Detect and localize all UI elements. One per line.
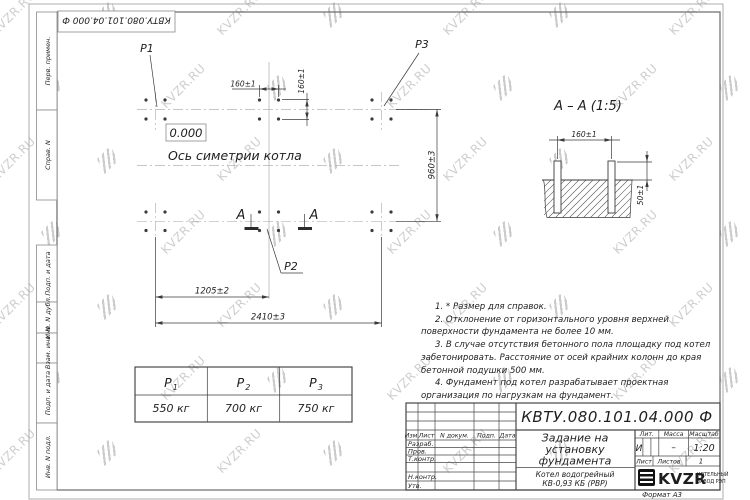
lit-mass-scale: Лит. Масса Масштаб И – 1:20	[635, 430, 720, 456]
col-list: Лист	[418, 433, 435, 440]
section-view: А – А (1:5) 160±1 50±1	[506, 99, 670, 218]
note-3: 3. В случае отсутствия бетонного пола пл…	[421, 339, 718, 377]
product-line2: КВ-0,93 КБ (РВР)	[542, 479, 607, 488]
concrete-pad	[506, 180, 670, 218]
title-block-designation: КВТУ.080.101.04.000 Ф	[521, 408, 712, 426]
concrete-hatching	[506, 180, 670, 218]
note-4: 4. Фундамент под котел разрабатывает про…	[421, 377, 718, 402]
load-table-value-p1: 550 кг	[153, 402, 190, 415]
scale-label: Масштаб	[689, 430, 719, 438]
note-2: 2. Отклонение от горизонтального уровня …	[421, 314, 718, 339]
load-table-value-p3: 750 кг	[298, 402, 335, 415]
product-name: Котел водогрейный КВ-0,93 КБ (РВР)	[536, 470, 615, 488]
dim-160-side-text: 160±1	[297, 68, 306, 93]
boiler-axis-label: Ось симетрии котла	[168, 148, 302, 163]
company-logo: KVZR КОТЕЛЬНЫЙ ЗАВОД РЭП	[638, 469, 729, 488]
margin-label-inv-podl: Инв. N подл.	[44, 435, 52, 478]
load-table-header-p2: P2	[237, 375, 251, 392]
sheets-value: 1	[699, 458, 703, 466]
elevation-mark-text: 0.000	[170, 126, 203, 140]
dimension-arrows	[156, 87, 649, 324]
mass-value: –	[671, 443, 676, 453]
section-cut-marks: А А	[236, 208, 319, 229]
doc-title-line3: фундамента	[539, 455, 612, 468]
sheet-label: Лист	[635, 459, 652, 466]
lit-value: И	[636, 444, 643, 454]
dim-1205-text: 1205±2	[195, 287, 229, 297]
load-table: P1 P2 P3 550 кг 700 кг 750 кг	[135, 367, 352, 422]
margin-label-vzam-inv: Взам. инв. N	[44, 327, 52, 369]
company-tagline-line2: ЗАВОД РЭП	[697, 479, 726, 485]
load-table-header-p1: P1	[164, 375, 178, 392]
section-dim-50-text: 50±1	[636, 185, 645, 206]
margin-label-podp-data-2: Подп. и дата	[44, 371, 52, 415]
mass-label: Масса	[664, 431, 684, 438]
section-view-title: А – А (1:5)	[553, 99, 622, 114]
title-block: Изм. Лист N докум. Подп. Дата Разраб. Пр…	[405, 403, 729, 499]
sheets-label: Листов	[656, 459, 680, 466]
top-designation-stamp: КВТУ.080.101.04.000 Ф	[58, 11, 175, 32]
dim-960-text: 960±3	[428, 151, 438, 180]
col-izm: Изм.	[405, 433, 420, 440]
load-point-p1-label: P1	[140, 42, 154, 55]
company-tagline-line1: КОТЕЛЬНЫЙ	[697, 471, 729, 478]
drawing-sheet: KVZR.RUKVZR.RUKVZR.RUKVZR.RUKVZR.RUKVZR.…	[0, 0, 750, 500]
dim-2410-text: 2410±3	[251, 313, 285, 323]
product-line1: Котел водогрейный	[536, 470, 615, 479]
scale-value: 1:20	[693, 443, 714, 454]
row-tkontr: Т.контр.	[408, 455, 436, 463]
margin-label-podp-data-1: Подп. и дата	[44, 251, 52, 295]
load-table-header-p3: P3	[309, 375, 323, 392]
left-margin-cells: Перв. примен. Справ. N Подп. и дата Инв.…	[37, 12, 58, 490]
section-letter-right: А	[309, 208, 319, 223]
note-1: 1. * Размер для справок.	[421, 301, 718, 314]
signature-grid: Изм. Лист N докум. Подп. Дата Разраб. Пр…	[405, 403, 516, 490]
centerlines	[137, 62, 427, 299]
load-table-value-p2: 700 кг	[225, 402, 262, 415]
col-podp: Подп.	[477, 433, 496, 440]
margin-label-perv-primen: Перв. примен.	[44, 37, 52, 86]
load-point-p3-label: P3	[415, 38, 429, 51]
technical-notes: 1. * Размер для справок. 2. Отклонение о…	[421, 301, 718, 403]
sheet-row: Лист Листов 1	[635, 456, 720, 466]
col-ndokum: N докум.	[440, 433, 469, 440]
anchor-bolt-right	[608, 161, 615, 213]
lit-label: Лит.	[639, 431, 654, 438]
row-nkontr: Н.контр.	[408, 473, 437, 481]
stamp-designation-text: КВТУ.080.101.04.000 Ф	[62, 15, 171, 25]
load-point-p2-label: P2	[284, 260, 298, 273]
section-letter-left: А	[236, 208, 246, 223]
document-title: Задание на установку фундамента	[539, 432, 612, 468]
dim-160-top-text: 160±1	[230, 80, 255, 89]
anchor-bolt-left	[554, 161, 561, 213]
margin-label-sprav-n: Справ. N	[44, 140, 52, 170]
section-dim-160-text: 160±1	[571, 130, 596, 139]
row-utv: Утв.	[408, 482, 422, 490]
foundation-plan: 160±1 160±1 960±3 1205±2 2410±3	[137, 38, 649, 327]
drawing-canvas: КВТУ.080.101.04.000 Ф Перв. примен. Спра…	[0, 0, 750, 500]
col-data: Дата	[498, 433, 515, 440]
format-note: Формат А3	[642, 491, 682, 499]
